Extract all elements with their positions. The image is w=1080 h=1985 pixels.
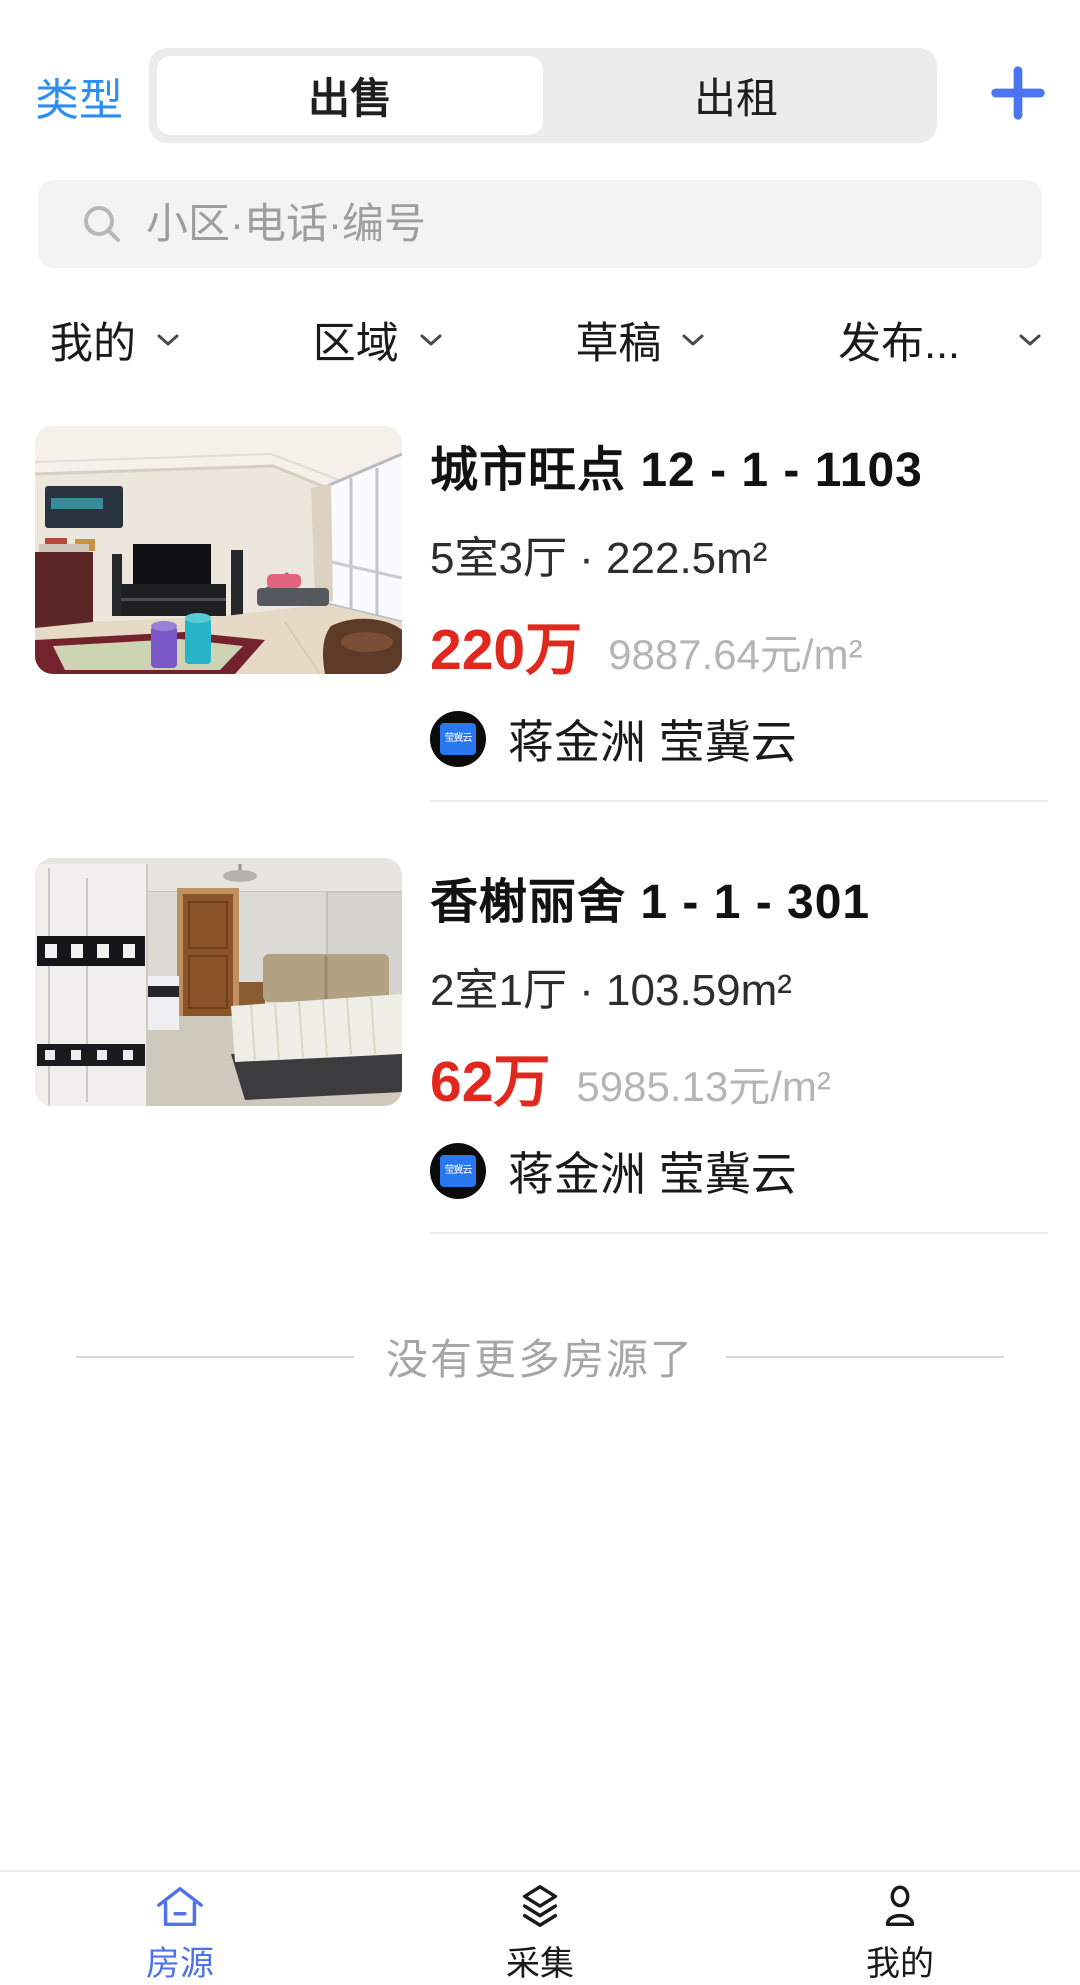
- agent-name: 蒋金洲 莹冀云: [508, 1138, 797, 1204]
- listing-price: 220万: [430, 604, 582, 686]
- plus-icon: [987, 62, 1049, 129]
- price-row: 220万 9887.64元/m²: [430, 604, 1048, 686]
- chevron-down-icon: [681, 332, 705, 348]
- listing-title: 香榭丽舍 1 - 1 - 301: [430, 862, 1048, 932]
- agent-badge: 莹冀云: [440, 1155, 476, 1187]
- tab-label: 房源: [146, 1936, 214, 1985]
- chevron-down-icon: [1018, 332, 1042, 348]
- tab-for-sale[interactable]: 出售: [157, 56, 543, 135]
- search-icon: [80, 202, 124, 246]
- listing-card[interactable]: 城市旺点 12 - 1 - 1103 5室3厅 · 222.5m² 220万 9…: [35, 426, 1048, 802]
- chevron-down-icon: [419, 332, 443, 348]
- tab-for-rent[interactable]: 出租: [543, 56, 929, 135]
- listing-title: 城市旺点 12 - 1 - 1103: [430, 430, 1048, 500]
- tab-label: 采集: [506, 1936, 574, 1985]
- listing-photo-bedroom: [35, 858, 402, 1106]
- listing-unit-price: 9887.64元/m²: [608, 621, 862, 682]
- search-input[interactable]: [146, 200, 1012, 248]
- listing-spec: 5室3厅 · 222.5m²: [430, 522, 1048, 586]
- filter-label: 发布...: [838, 309, 960, 371]
- sale-rent-segmented-control: 出售 出租: [149, 48, 937, 143]
- agent-row: 莹冀云 蒋金洲 莹冀云: [430, 706, 1048, 772]
- type-link[interactable]: 类型: [35, 64, 123, 128]
- filter-draft[interactable]: 草稿: [575, 309, 705, 371]
- add-listing-button[interactable]: [986, 64, 1050, 128]
- filter-label: 草稿: [575, 309, 661, 371]
- filter-label: 我的: [50, 309, 136, 371]
- price-row: 62万 5985.13元/m²: [430, 1036, 1048, 1118]
- home-icon: [155, 1882, 205, 1932]
- agent-avatar: 莹冀云: [430, 1143, 486, 1199]
- filter-publish[interactable]: 发布...: [838, 309, 1042, 371]
- listing-unit-price: 5985.13元/m²: [576, 1053, 830, 1114]
- layers-icon: [515, 1882, 565, 1932]
- agent-name: 蒋金洲 莹冀云: [508, 706, 797, 772]
- listing-info: 香榭丽舍 1 - 1 - 301 2室1厅 · 103.59m² 62万 598…: [430, 858, 1048, 1234]
- user-icon: [875, 1882, 925, 1932]
- tab-collect[interactable]: 采集: [360, 1872, 720, 1985]
- agent-badge: 莹冀云: [440, 723, 476, 755]
- tab-listings[interactable]: 房源: [0, 1872, 360, 1985]
- search-bar[interactable]: [38, 180, 1042, 268]
- divider-line: [726, 1356, 1004, 1358]
- bottom-tab-bar: 房源 采集 我的: [0, 1870, 1080, 1968]
- tab-mine[interactable]: 我的: [720, 1872, 1080, 1985]
- divider-line: [76, 1356, 354, 1358]
- filter-label: 区域: [313, 309, 399, 371]
- agent-avatar: 莹冀云: [430, 711, 486, 767]
- listing-card[interactable]: 香榭丽舍 1 - 1 - 301 2室1厅 · 103.59m² 62万 598…: [35, 858, 1048, 1234]
- listing-info: 城市旺点 12 - 1 - 1103 5室3厅 · 222.5m² 220万 9…: [430, 426, 1048, 802]
- agent-row: 莹冀云 蒋金洲 莹冀云: [430, 1138, 1048, 1204]
- list-end: 没有更多房源了: [0, 1326, 1080, 1387]
- no-more-listings-text: 没有更多房源了: [386, 1326, 694, 1387]
- filter-mine[interactable]: 我的: [50, 309, 180, 371]
- header: 类型 出售 出租: [35, 48, 1050, 143]
- tab-label: 我的: [866, 1936, 934, 1985]
- listing-price: 62万: [430, 1036, 550, 1118]
- filter-region[interactable]: 区域: [313, 309, 443, 371]
- listing-photo-living-room: [35, 426, 402, 674]
- filter-row: 我的 区域 草稿 发布...: [50, 316, 1042, 364]
- listing-spec: 2室1厅 · 103.59m²: [430, 954, 1048, 1018]
- chevron-down-icon: [156, 332, 180, 348]
